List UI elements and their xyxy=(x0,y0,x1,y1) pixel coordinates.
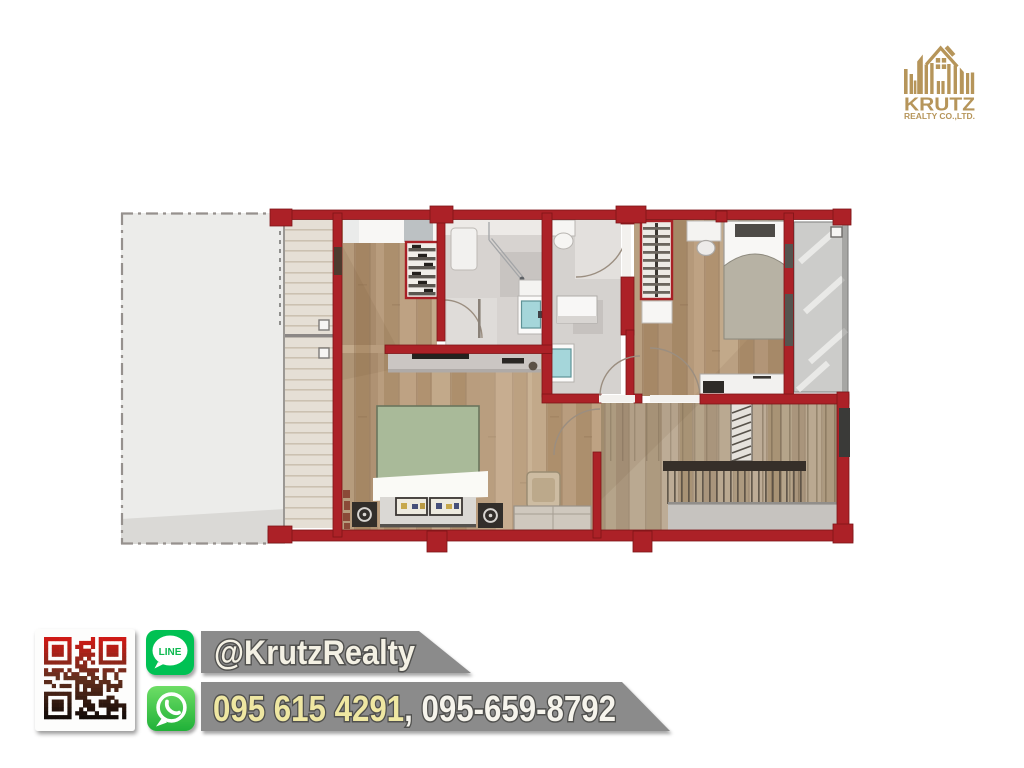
svg-text:LINE: LINE xyxy=(159,647,182,658)
svg-text:095 615 4291, 095-659-8792: 095 615 4291, 095-659-8792 xyxy=(213,688,616,729)
svg-text:REALTY CO.,LTD.: REALTY CO.,LTD. xyxy=(904,112,975,121)
svg-text:@KrutzRealty: @KrutzRealty xyxy=(214,634,415,672)
